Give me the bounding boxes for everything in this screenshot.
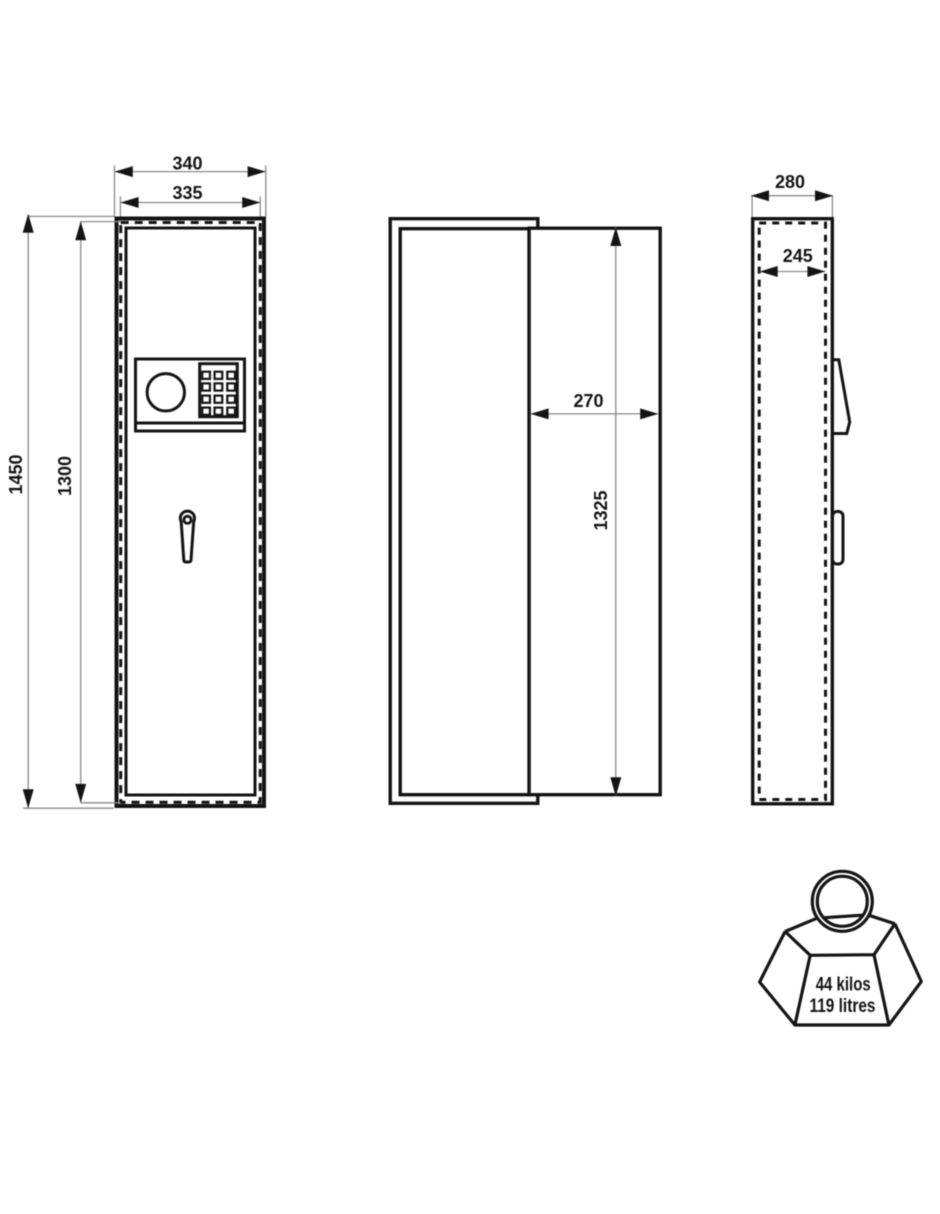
svg-text:340: 340 (172, 154, 202, 174)
svg-text:270: 270 (573, 391, 603, 411)
svg-text:1300: 1300 (55, 456, 75, 496)
svg-text:1325: 1325 (591, 490, 611, 530)
svg-text:335: 335 (172, 183, 202, 203)
svg-text:1450: 1450 (6, 454, 26, 494)
svg-text:44 kilos: 44 kilos (816, 975, 871, 996)
svg-text:119 litres: 119 litres (810, 996, 876, 1017)
svg-text:280: 280 (775, 172, 805, 192)
svg-text:245: 245 (783, 246, 813, 266)
